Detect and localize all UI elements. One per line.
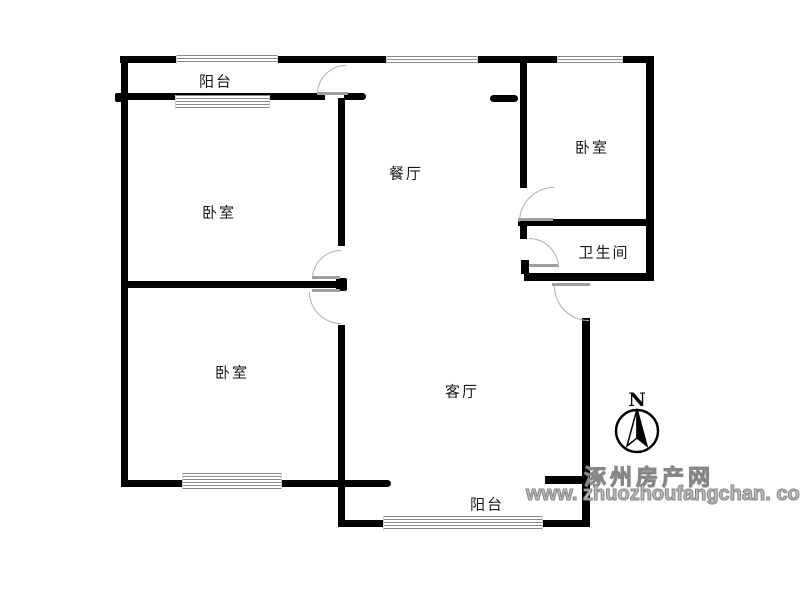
window-balcony-bottom [383,516,543,531]
window-bedroom-right-top [557,56,623,64]
room-label-bathroom: 卫生间 [578,242,629,263]
room-label-bedroom-right: 卧室 [575,137,609,158]
window-dining-top [386,56,478,64]
room-label-dining: 餐厅 [389,163,423,184]
watermark-site-url: www. zhuozhoufangchan. com [526,483,800,506]
wall-central-bottom [338,325,345,527]
wall-dash [490,95,518,102]
compass-needle-left [627,409,637,446]
wall-bathroom-bottom [524,273,654,281]
wall-bedroom-right-left [520,56,527,188]
door-leaf-bedroom-top-left [312,276,340,279]
wall-bathroom-top-stub [520,226,527,239]
wall-left-bump [115,93,124,102]
door-arc-living-entry [554,286,589,321]
door-arc-bedroom-top-left [312,250,341,279]
door-arc-bedroom-bottom-left [309,292,341,324]
room-label-bedroom-top-left: 卧室 [202,202,236,223]
floor-plan: 阳台 卧室 卧室 餐厅 卧室 卫生间 客厅 阳台 N 涿州房产网 www. zh… [0,0,800,600]
wall-bedroom-divider [121,281,346,288]
wall-central-top [338,98,345,246]
door-leaf-living-entry [552,283,590,286]
compass-needle-right [637,409,647,446]
window-balcony-top-outer [176,55,278,64]
door-leaf-balcony [317,92,348,95]
door-leaf-bedroom-right [518,218,553,221]
door-arc-balcony [317,65,346,94]
room-label-bedroom-bottom-left: 卧室 [215,362,249,383]
wall-bathroom-bottom-stub [521,260,529,274]
compass-north-indicator: N [610,388,666,460]
room-label-living: 客厅 [445,381,479,402]
window-bedroom-bottom [182,473,282,489]
window-balcony-top-inner [175,95,270,109]
room-label-balcony-bottom: 阳台 [470,494,504,515]
door-leaf-bedroom-bottom-left [312,289,340,292]
compass-north-letter: N [628,389,645,411]
wall-left [121,56,128,487]
door-leaf-bathroom [529,264,558,267]
room-label-balcony-top: 阳台 [199,71,233,92]
door-arc-bedroom-right [519,187,554,222]
wall-right [646,56,654,281]
